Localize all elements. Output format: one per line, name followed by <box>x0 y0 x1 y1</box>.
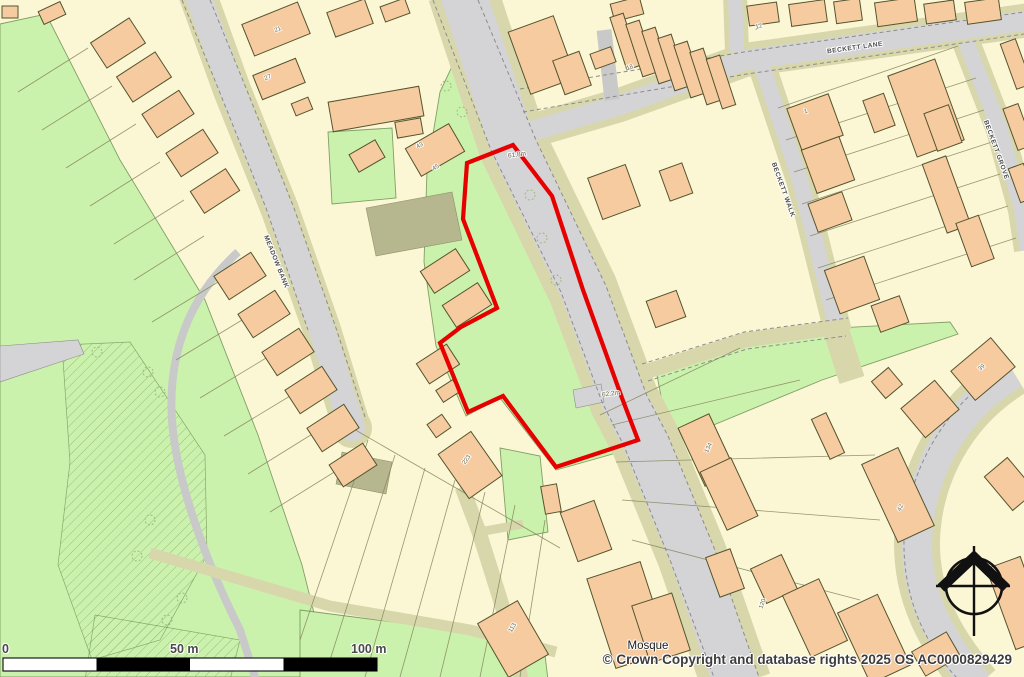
road-carriageway <box>735 0 737 52</box>
building <box>965 0 1002 24</box>
map-viewport[interactable]: 0 50 m 100 m © Crown Copyright and datab… <box>0 0 1024 677</box>
building <box>747 2 779 26</box>
building <box>834 0 863 24</box>
scale-bar <box>3 658 377 671</box>
building <box>2 6 18 18</box>
building <box>924 0 956 24</box>
building <box>789 0 828 26</box>
map-canvas <box>0 0 1024 677</box>
